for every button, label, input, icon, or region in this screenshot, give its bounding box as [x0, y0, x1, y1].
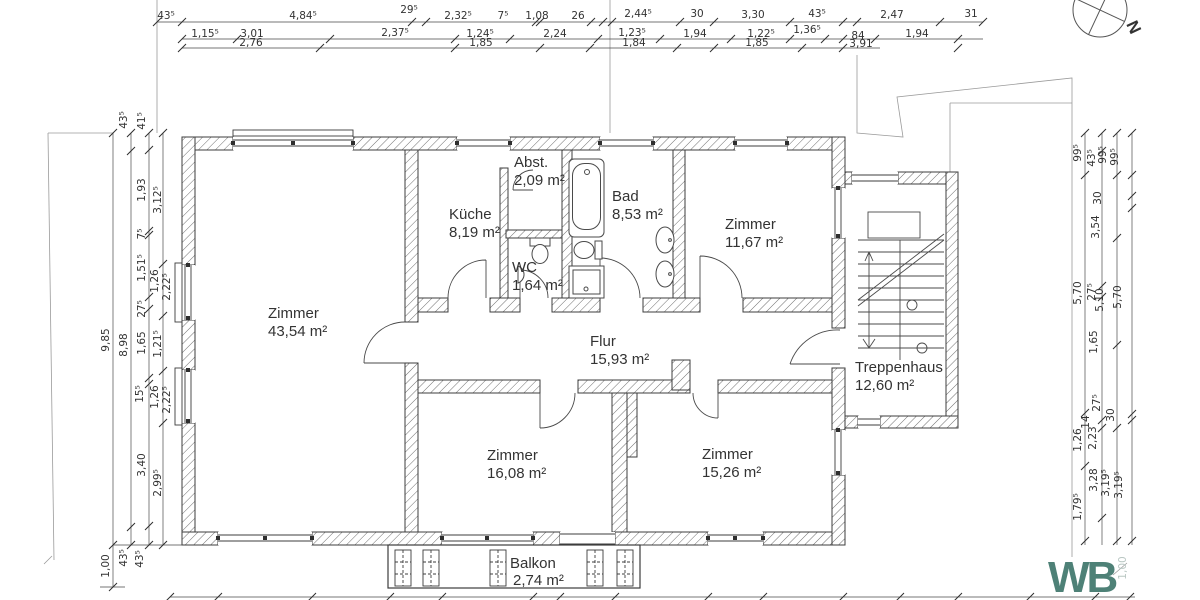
dim-label: 5,70	[1112, 285, 1124, 308]
room-label-bad: Bad	[612, 188, 639, 205]
room-label-zimmer2: Zimmer	[725, 216, 776, 233]
dim-label: 1,93	[136, 178, 148, 201]
room-label-zimmer3: Zimmer	[487, 447, 538, 464]
floorplan-page: Zimmer 43,54 m² Küche 8,19 m² Abst. 2,09…	[0, 0, 1200, 600]
dim-label: 1,85	[469, 37, 492, 49]
dim-label: 30	[1105, 408, 1117, 421]
staircase	[858, 212, 944, 360]
dim-label: 2,22⁵	[161, 386, 173, 414]
dim-label: 30	[690, 8, 703, 20]
dim-label: 99⁵	[1097, 146, 1109, 164]
bathtub-drain	[585, 170, 590, 175]
room-area-zimmer1: 43,54 m²	[268, 323, 327, 340]
dim-label: 3,30	[741, 9, 764, 21]
dim-label: 2,44⁵	[624, 8, 652, 20]
dim-label: 2,37⁵	[381, 27, 409, 39]
room-area-zimmer2: 11,67 m²	[725, 234, 783, 251]
dim-label: 29⁵	[400, 4, 418, 16]
door-entry	[790, 330, 840, 364]
room-label-zimmer1: Zimmer	[268, 305, 319, 322]
dim-label: 2,47	[880, 9, 903, 21]
dim-label: 2,99⁵	[152, 469, 164, 497]
dim-label: 5,70	[1072, 281, 1084, 304]
shower-drain	[584, 287, 588, 291]
room-area-zimmer4: 15,26 m²	[702, 464, 761, 481]
dim-label: 27⁵	[136, 300, 148, 318]
door-zimmer2	[700, 256, 742, 298]
dim-label: 3,28	[1088, 468, 1100, 491]
dim-label: 1,94	[905, 28, 929, 40]
dim-label: 27⁵	[1091, 394, 1103, 412]
dim-label: 1,26	[149, 269, 161, 293]
dim-label: 3,54	[1090, 215, 1102, 239]
dim-label: 7⁵	[498, 10, 509, 22]
room-label-flur: Flur	[590, 333, 616, 350]
floorplan-drawing: Zimmer 43,54 m² Küche 8,19 m² Abst. 2,09…	[0, 0, 1200, 600]
room-area-abst: 2,09 m²	[514, 172, 565, 189]
dim-label: 2,24	[543, 28, 567, 40]
dim-label: 3,19⁵	[1100, 469, 1112, 497]
dim-label: 9,85	[100, 328, 112, 351]
dim-label: 3,12⁵	[152, 186, 164, 214]
room-label-abst: Abst.	[514, 154, 548, 171]
dim-label: 1,79⁵	[1072, 493, 1084, 521]
dim-label: 43⁵	[118, 549, 130, 567]
room-label-wc: WC	[512, 259, 537, 276]
dim-label: 1,21⁵	[152, 330, 164, 358]
room-area-flur: 15,93 m²	[590, 351, 649, 368]
door-zimmer1	[364, 322, 405, 363]
wb-logo: WB	[1048, 553, 1117, 600]
dim-label: 2,76	[239, 37, 263, 49]
dim-label: 43⁵	[118, 111, 130, 129]
dim-label: 1,65	[1088, 330, 1100, 353]
room-label-balkon: Balkon	[510, 555, 556, 572]
dim-label: 99⁵	[1109, 148, 1121, 166]
left-dimension-labels: 9,85 43⁵ 8,98 43⁵ 41⁵ 1,93 7⁵ 1,51⁵ 27⁵ …	[100, 111, 173, 577]
dim-label: 3,40	[136, 453, 148, 476]
dim-label: 2,23	[1087, 426, 1099, 449]
dim-label: 2,22⁵	[161, 273, 173, 301]
dim-label: 1,65	[136, 331, 148, 354]
dim-label: 41⁵	[136, 112, 148, 130]
dim-label: 1,36⁵	[793, 24, 821, 36]
room-label-treppenhaus: Treppenhaus	[855, 359, 943, 376]
dim-label: 3,91	[849, 38, 872, 50]
dim-label: 30	[1092, 191, 1104, 204]
dim-label: 3,19⁵	[1113, 471, 1125, 499]
room-area-kueche: 8,19 m²	[449, 224, 500, 241]
dim-label: 1,26	[149, 385, 161, 409]
door-bad	[600, 258, 640, 298]
room-label-kueche: Küche	[449, 206, 492, 223]
room-label-zimmer4: Zimmer	[702, 446, 753, 463]
top-dimension-labels: 43⁵ 4,84⁵ 29⁵ 2,32⁵ 7⁵ 1,08 26 2,44⁵ 30 …	[157, 4, 977, 50]
dim-label: 1,84	[622, 37, 646, 49]
room-area-wc: 1,64 m²	[512, 277, 563, 294]
dim-label: 43⁵	[134, 550, 146, 568]
dim-label: 1,85	[745, 37, 768, 49]
north-label: N	[1122, 18, 1144, 37]
room-area-zimmer3: 16,08 m²	[487, 465, 546, 482]
dim-label-faded: 1,00	[1117, 556, 1129, 579]
dim-label: 5,10	[1094, 288, 1106, 311]
dim-label: 31	[964, 8, 977, 20]
dim-label: 1,00	[100, 554, 112, 577]
dim-label: 43⁵	[808, 8, 826, 20]
dim-label: 1,26	[1072, 428, 1084, 452]
washbasins	[656, 227, 674, 287]
room-area-bad: 8,53 m²	[612, 206, 663, 223]
dim-label: 26	[571, 10, 585, 22]
room-area-balkon: 2,74 m²	[513, 572, 564, 589]
door-zimmer4	[693, 393, 718, 418]
north-arrow-icon: N	[1064, 0, 1145, 46]
room-area-treppenhaus: 12,60 m²	[855, 377, 914, 394]
dim-label: 4,84⁵	[289, 10, 317, 22]
dim-label: 1,08	[525, 10, 548, 22]
dim-label: 15⁵	[134, 385, 146, 403]
door-kueche	[448, 260, 486, 298]
dim-label: 2,32⁵	[444, 10, 472, 22]
dim-label: 43⁵	[157, 10, 175, 22]
dim-label: 1,51⁵	[136, 254, 148, 282]
toilet-bad	[574, 241, 602, 259]
right-dimension-labels: 99⁵ 5,70 1,26 1,79⁵ 43⁵ 27⁵ 14 2,23 3,28…	[1072, 144, 1129, 579]
dim-label: 1,15⁵	[191, 28, 219, 40]
dim-label: 99⁵	[1072, 144, 1084, 162]
dim-label: 8,98	[118, 333, 130, 356]
dim-label: 7⁵	[136, 229, 148, 240]
dim-label: 1,94	[683, 28, 707, 40]
door-zimmer3	[540, 393, 575, 428]
